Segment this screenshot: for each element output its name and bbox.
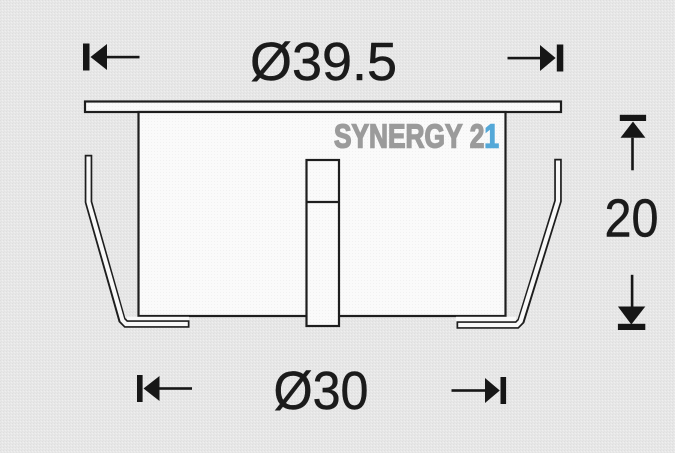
svg-text:Ø30: Ø30 bbox=[274, 362, 369, 421]
svg-text:SYNERGY 21: SYNERGY 21 bbox=[334, 118, 499, 155]
svg-text:Ø39.5: Ø39.5 bbox=[250, 33, 397, 92]
svg-text:20: 20 bbox=[605, 190, 659, 249]
